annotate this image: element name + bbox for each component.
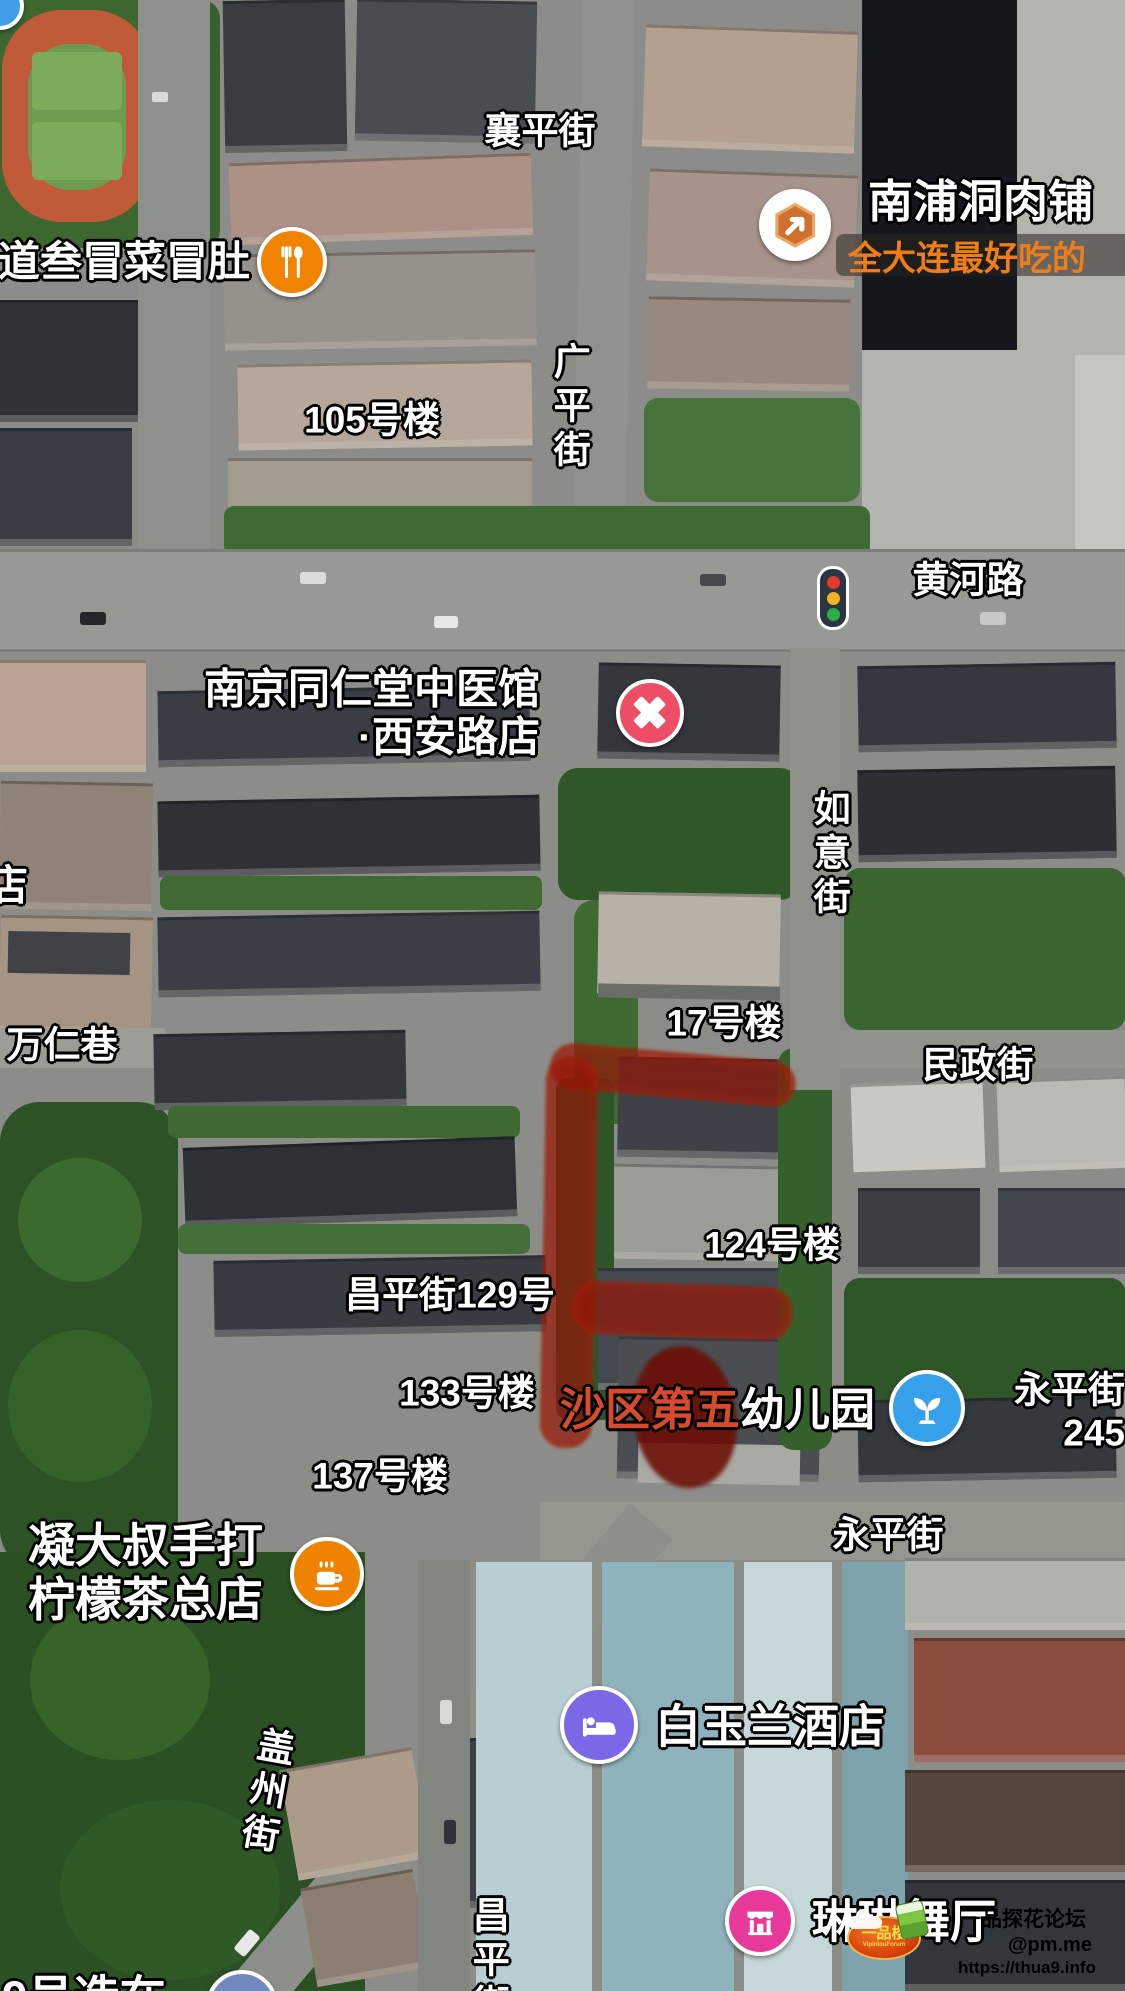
watermark-forum-text: 一品探花论坛 [960,1903,1086,1933]
cloud-icon [848,1916,882,1929]
watermark-logo-subtitle: VipinlouForum [863,1941,905,1949]
bubble-tea-icon [895,1899,930,1940]
watermark-url-text: https://thua9.info [958,1958,1096,1978]
watermark: 一品探花论坛 @pm.me https://thua9.info 一品楼 Vip… [0,0,1125,1991]
satellite-map[interactable]: 襄平街广平街黄河路如意街万仁巷民政街永平街盖州街昌平街永平街 245105号楼1… [0,0,1125,1991]
watermark-email-text: @pm.me [1008,1934,1092,1957]
